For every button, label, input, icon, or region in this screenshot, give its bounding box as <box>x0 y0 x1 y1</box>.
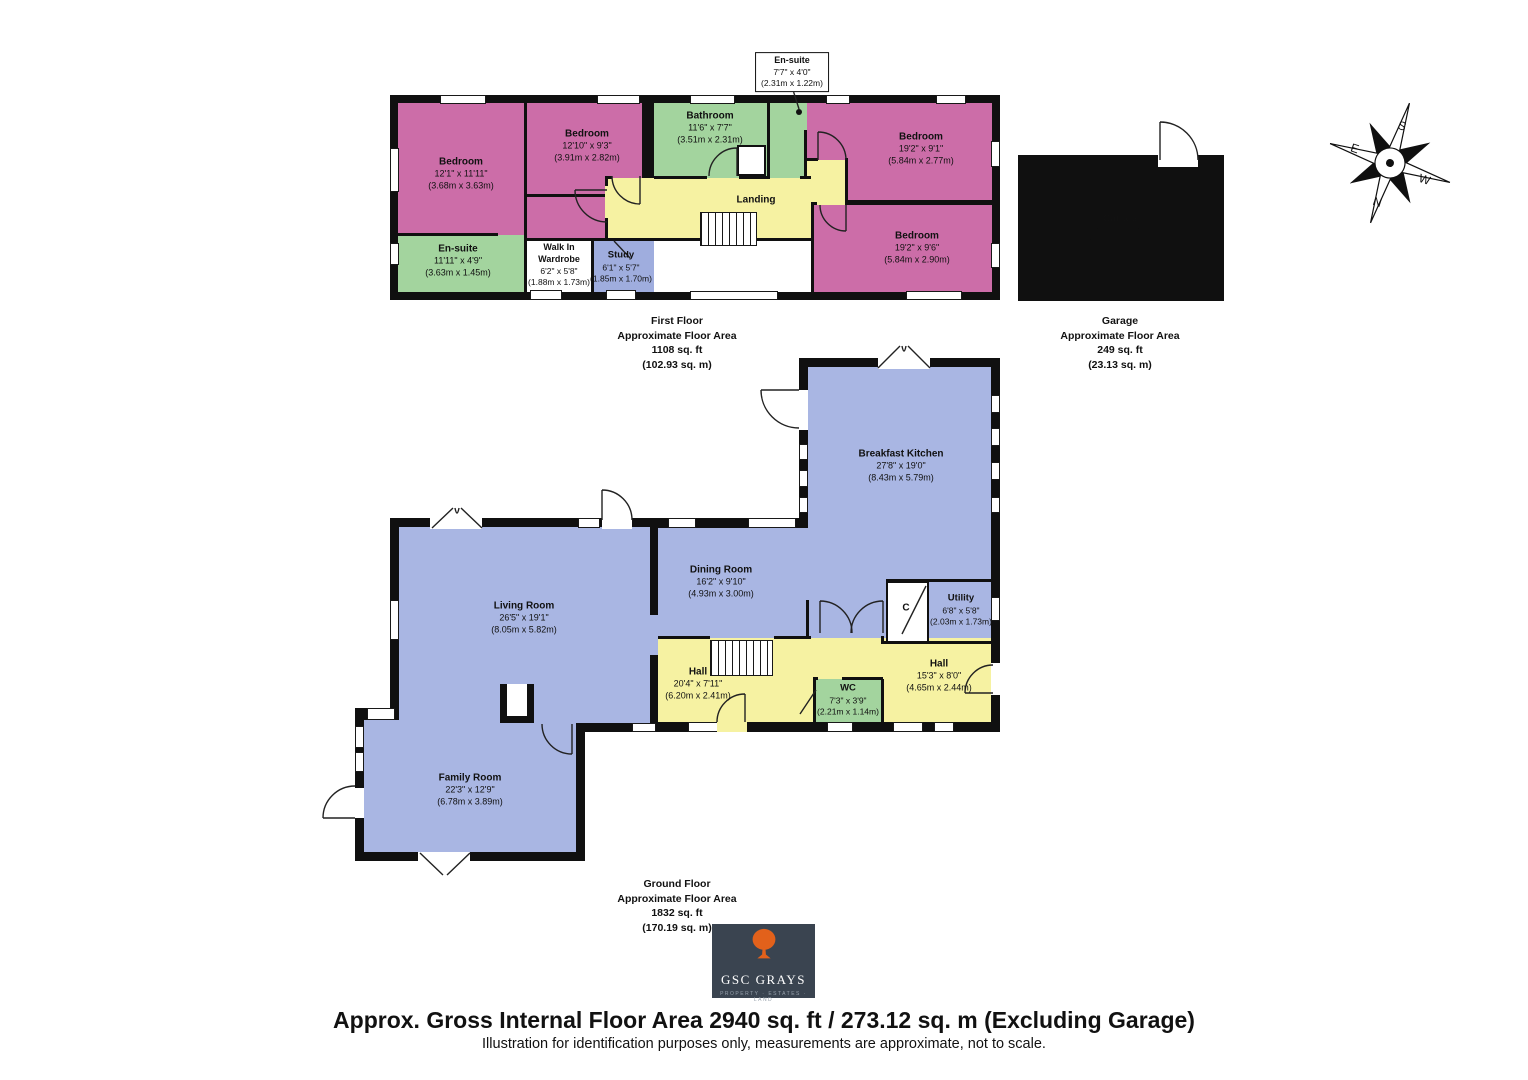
compass-label-n: N <box>1371 194 1384 210</box>
window <box>632 723 656 732</box>
room-label-landing: Landing <box>737 193 776 206</box>
fireplace-opening <box>507 684 527 716</box>
wall <box>654 176 707 179</box>
window <box>827 722 853 732</box>
room-label-bedroom-left: Bedroom 12'1" x 11'11" (3.68m x 3.63m) <box>428 156 494 193</box>
window <box>991 428 1000 446</box>
wall <box>804 130 807 178</box>
wall <box>886 579 991 582</box>
window <box>390 148 399 192</box>
window <box>367 708 395 720</box>
family-living-door-opening <box>542 712 572 722</box>
stairs-first-floor <box>700 212 757 246</box>
wall <box>774 636 811 639</box>
window <box>991 395 1000 413</box>
wall-tick <box>1018 225 1028 228</box>
door-arc <box>323 786 355 818</box>
first-floor-area-label: First Floor Approximate Floor Area 1108 … <box>617 314 736 373</box>
wall <box>842 677 883 680</box>
window <box>390 243 399 265</box>
door-opening <box>602 518 632 529</box>
room-label-bedroom-mid: Bedroom 12'10" x 9'3" (3.91m x 2.82m) <box>554 128 620 165</box>
window <box>934 722 954 732</box>
ensuite-callout: En-suite 7'7" x 4'0" (2.31m x 1.22m) <box>755 52 829 92</box>
gsc-grays-logo: GSC GRAYS PROPERTY · ESTATES · LAND <box>712 924 815 998</box>
room-label-living-room: Living Room 26'5" x 19'1" (8.05m x 5.82m… <box>491 600 557 637</box>
wall <box>642 100 654 178</box>
logo-tagline: PROPERTY · ESTATES · LAND <box>712 991 815 1003</box>
wall <box>813 677 816 722</box>
room-label-family-room: Family Room 22'3" x 12'9" (6.78m x 3.89m… <box>437 772 503 809</box>
wall <box>881 636 884 644</box>
wall <box>767 103 770 178</box>
window <box>799 470 808 487</box>
window <box>355 726 364 748</box>
window <box>530 290 562 300</box>
door-opening <box>799 390 808 430</box>
landing-nook <box>807 160 848 205</box>
door-opening <box>1158 155 1198 167</box>
room-label-garage: Garage 19'1" x 13'1" (5.82m x 3.99m) <box>1087 213 1153 250</box>
living-dining-opening <box>650 615 658 655</box>
wall <box>757 238 811 241</box>
room-label-hall-left: Hall 20'4" x 7'11" (6.20m x 2.41m) <box>665 666 731 703</box>
garage-area-label: Garage Approximate Floor Area 249 sq. ft… <box>1060 314 1179 373</box>
room-label-bedroom-right-top: Bedroom 19'2" x 9'1" (5.84m x 2.77m) <box>888 131 954 168</box>
window <box>991 597 1000 621</box>
wall <box>845 158 848 205</box>
wall <box>605 238 700 241</box>
window <box>748 518 796 528</box>
footer-title: Approx. Gross Internal Floor Area 2940 s… <box>0 1007 1528 1034</box>
wall <box>526 194 605 197</box>
room-label-wc: WC 7'3" x 3'9" (2.21m x 1.14m) <box>817 683 879 718</box>
window <box>688 722 718 732</box>
wall <box>848 200 992 205</box>
logo-tree-icon <box>744 927 784 965</box>
room-label-dining-room: Dining Room 16'2" x 9'10" (4.93m x 3.00m… <box>688 564 754 601</box>
wall <box>884 641 991 644</box>
window <box>826 95 850 104</box>
wall <box>398 233 498 236</box>
window <box>606 290 636 300</box>
window <box>578 518 600 528</box>
wall <box>658 636 710 639</box>
door-opening <box>717 722 747 732</box>
door-opening <box>991 663 1000 695</box>
wall-tick <box>1214 225 1224 228</box>
door-opening <box>878 358 930 369</box>
window <box>799 444 808 460</box>
footer-subtitle: Illustration for identification purposes… <box>0 1036 1528 1052</box>
wall <box>605 178 608 186</box>
wall <box>881 679 884 722</box>
room-label-breakfast-kitchen: Breakfast Kitchen 27'8" x 19'0" (8.43m x… <box>858 448 943 485</box>
window <box>390 600 399 640</box>
window <box>668 518 696 528</box>
bathroom-closet <box>737 145 766 176</box>
window <box>906 291 962 300</box>
door-opening <box>430 518 482 529</box>
wall <box>807 158 818 161</box>
window <box>690 291 778 300</box>
window <box>597 95 640 104</box>
wall <box>739 176 770 179</box>
window <box>991 462 1000 480</box>
room-label-study: Study 6'1" x 5'7" (1.85m x 1.70m) <box>590 250 652 285</box>
window <box>355 752 364 772</box>
door-arc <box>602 490 632 520</box>
wall-tick <box>1117 292 1120 301</box>
compass-label-s: S <box>1396 118 1408 134</box>
window <box>690 95 735 104</box>
window <box>799 497 808 513</box>
wall <box>806 600 809 636</box>
room-ensuite-upper <box>770 103 807 178</box>
room-label-utility: Utility 6'8" x 5'8" (2.03m x 1.73m) <box>930 593 992 628</box>
window <box>991 497 1000 513</box>
room-label-ensuite-lower: En-suite 11'11" x 4'9" (3.63m x 1.45m) <box>425 243 491 280</box>
compass-rose: S E W N <box>1325 98 1455 228</box>
door-arc <box>761 390 799 428</box>
door-opening <box>355 788 364 818</box>
room-label-bathroom: Bathroom 11'6" x 7'7" (3.51m x 2.31m) <box>677 110 743 147</box>
wall <box>811 205 814 292</box>
window <box>936 95 966 104</box>
stair-void <box>654 240 811 292</box>
door-opening <box>418 852 470 861</box>
wall <box>605 218 608 240</box>
room-bedroom-mid-lobby <box>526 197 605 240</box>
wall <box>524 103 527 292</box>
window <box>991 141 1000 167</box>
window <box>991 243 1000 268</box>
window <box>440 95 486 104</box>
logo-name: GSC GRAYS <box>712 972 815 988</box>
room-label-hall-right: Hall 15'3" x 8'0" (4.65m x 2.44m) <box>906 658 972 695</box>
window <box>893 722 923 732</box>
room-label-wardrobe: Walk In Wardrobe 6'2" x 5'8" (1.88m x 1.… <box>528 242 590 288</box>
room-label-bedroom-right-bottom: Bedroom 19'2" x 9'6" (5.84m x 2.90m) <box>884 230 950 267</box>
room-label-cupboard: C <box>902 601 909 614</box>
